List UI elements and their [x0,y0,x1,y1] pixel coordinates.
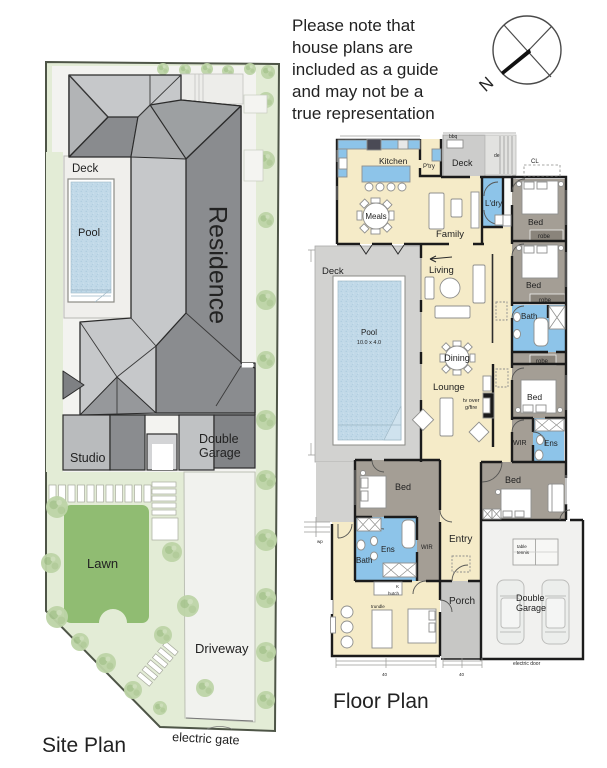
svg-text:Porch: Porch [449,596,475,607]
svg-text:de: de [494,153,500,159]
svg-text:Deck: Deck [452,158,473,168]
svg-text:Lawn: Lawn [87,556,118,571]
svg-text:Pool: Pool [78,227,100,239]
svg-text:Living: Living [429,265,454,276]
svg-text:40: 40 [382,672,388,677]
svg-text:WIR: WIR [513,440,527,447]
svg-text:Dining: Dining [444,353,470,363]
svg-text:Garage: Garage [516,603,546,613]
svg-text:bbq: bbq [449,134,458,140]
svg-text:wp: wp [317,539,323,544]
svg-text:Double: Double [199,432,239,446]
svg-text:included as a guide: included as a guide [292,60,439,79]
svg-text:Double: Double [516,593,545,603]
svg-text:Studio: Studio [70,451,105,465]
svg-text:Bath: Bath [521,312,537,321]
svg-text:Residence: Residence [203,206,231,324]
svg-text:Meals: Meals [365,212,386,221]
svg-text:Garage: Garage [199,446,241,460]
svg-text:Site Plan: Site Plan [42,734,126,757]
svg-text:table: table [517,544,527,549]
svg-text:Ens: Ens [544,439,558,448]
svg-text:g/fire: g/fire [465,405,477,411]
svg-text:Deck: Deck [322,266,344,277]
svg-text:hutch: hutch [388,591,400,596]
svg-text:true representation: true representation [292,104,435,123]
svg-text:Pool: Pool [361,328,377,337]
svg-text:Entry: Entry [449,534,472,545]
svg-text:Kitchen: Kitchen [379,156,408,166]
svg-text:tennis: tennis [517,550,530,555]
svg-text:Bed: Bed [528,217,543,227]
svg-text:WIR: WIR [421,545,433,551]
svg-text:house plans are: house plans are [292,38,413,57]
svg-text:Bed: Bed [395,482,411,492]
svg-text:Family: Family [436,229,464,240]
svg-text:L'dry: L'dry [485,199,502,208]
svg-text:robe: robe [538,234,551,240]
svg-text:Floor Plan: Floor Plan [333,690,429,713]
svg-text:10.0 x 4.0: 10.0 x 4.0 [357,340,381,346]
svg-text:40: 40 [459,672,465,677]
svg-text:P'try: P'try [423,164,435,170]
svg-text:K: K [396,584,399,589]
svg-text:Bed: Bed [526,280,541,290]
svg-text:Ens: Ens [381,545,395,554]
svg-text:electric door: electric door [513,661,541,667]
svg-text:tv over: tv over [463,398,480,404]
svg-text:and may not be a: and may not be a [292,82,424,101]
svg-text:Bed: Bed [505,475,521,485]
svg-text:Please note that: Please note that [292,16,415,35]
svg-text:Deck: Deck [72,163,98,175]
svg-text:Bed: Bed [527,392,542,402]
svg-text:Bath: Bath [356,556,372,565]
svg-text:Lounge: Lounge [433,382,465,393]
svg-text:trundle: trundle [371,604,385,609]
svg-text:Driveway: Driveway [195,641,249,656]
svg-text:CL: CL [531,159,539,165]
